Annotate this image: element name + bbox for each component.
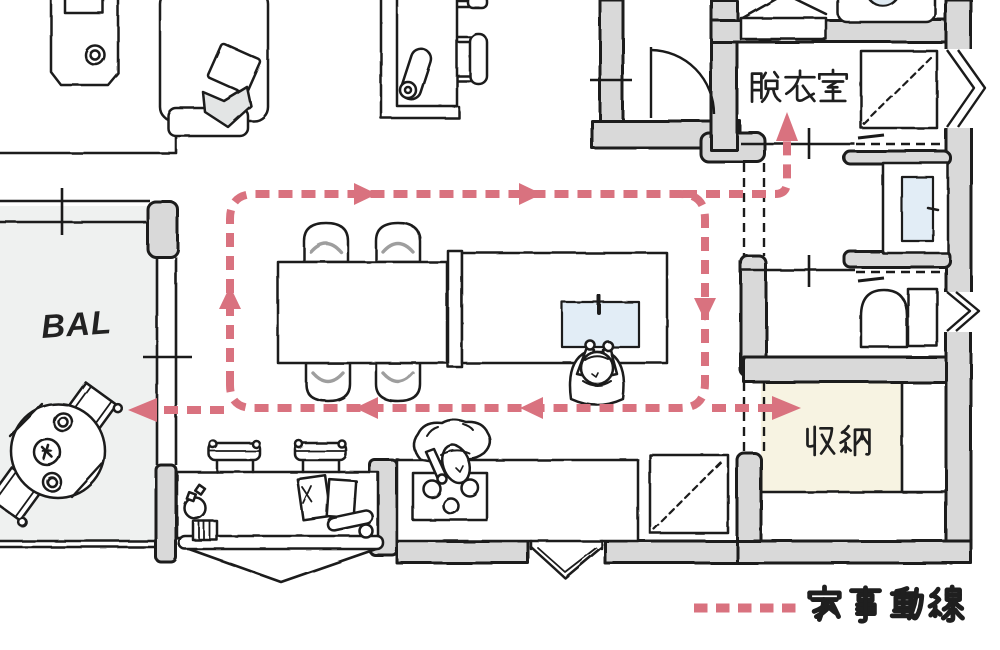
svg-text:BAL: BAL: [40, 303, 113, 345]
